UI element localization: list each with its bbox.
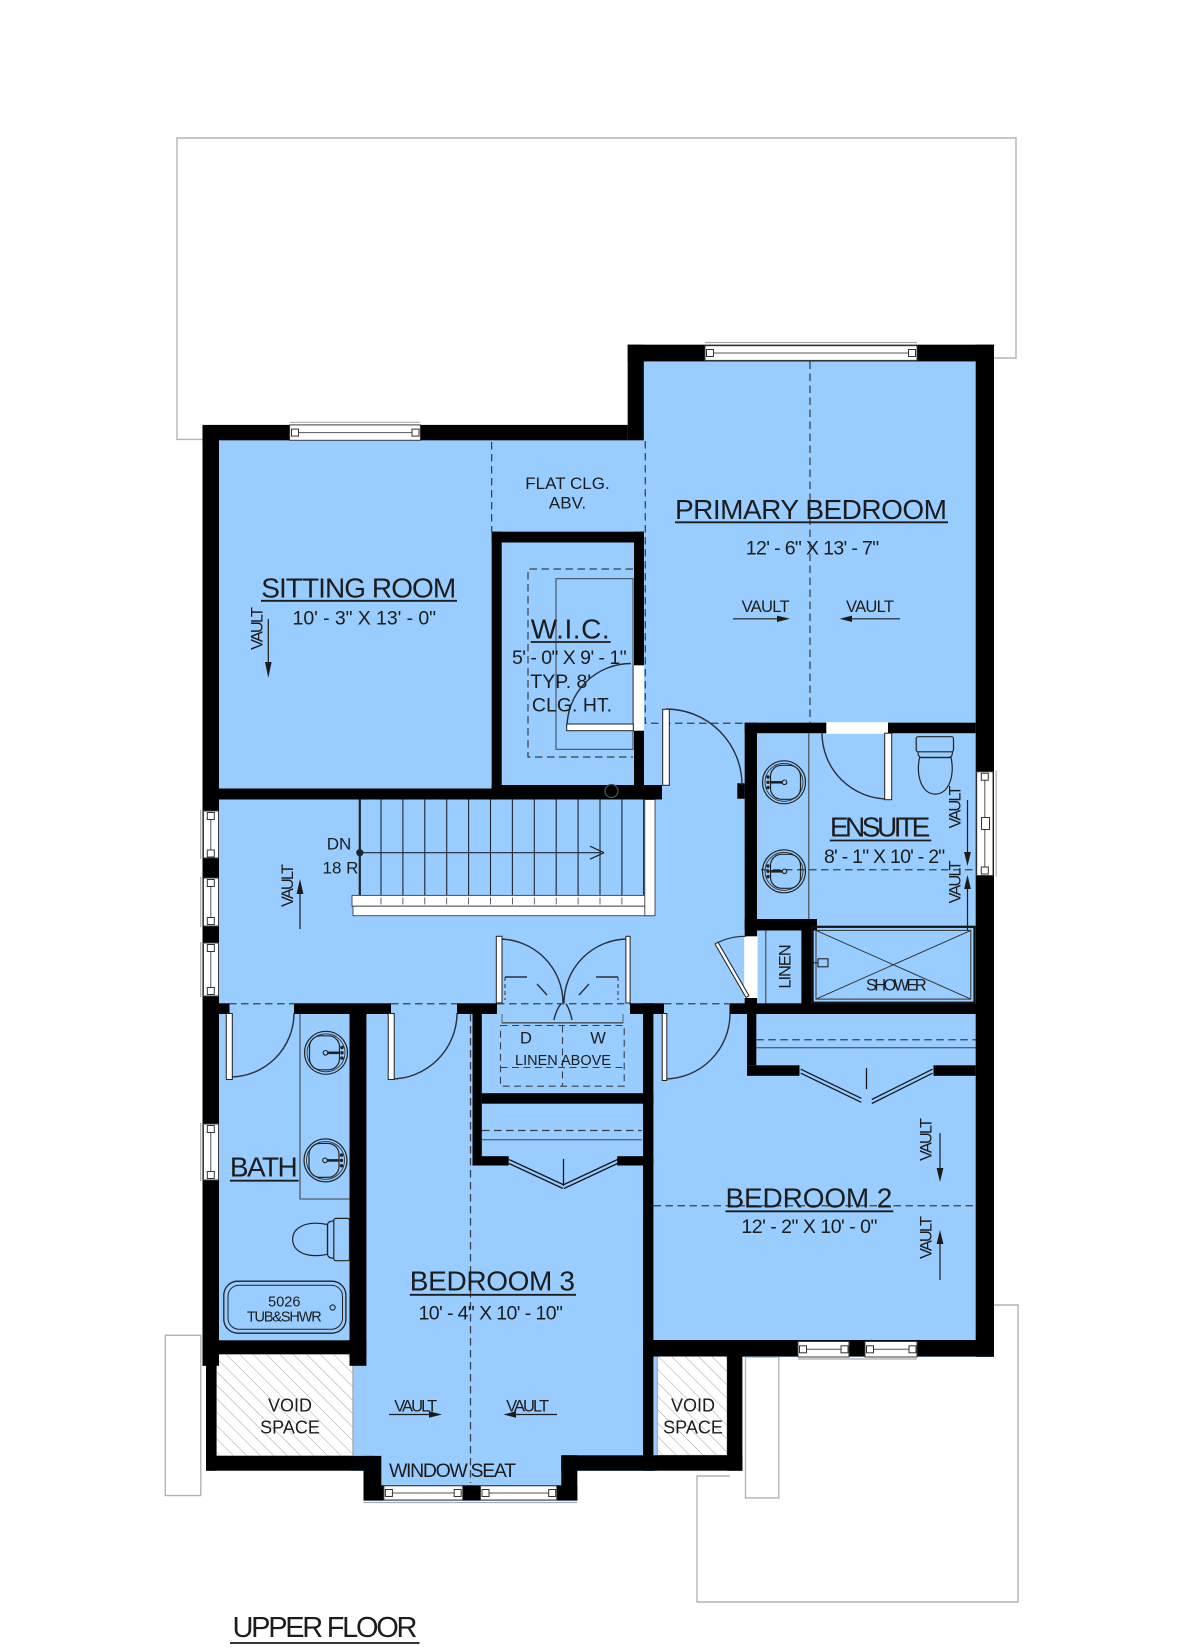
svg-text:W: W — [590, 1030, 606, 1048]
svg-text:LINEN ABOVE: LINEN ABOVE — [515, 1053, 611, 1069]
svg-text:DN: DN — [327, 835, 352, 854]
svg-text:SPACE: SPACE — [260, 1418, 320, 1438]
svg-text:VAULT: VAULT — [947, 861, 965, 904]
svg-text:5026: 5026 — [268, 1295, 300, 1311]
svg-text:10' - 4" X 10' - 10": 10' - 4" X 10' - 10" — [419, 1303, 563, 1325]
svg-text:12' - 6" X 13' - 7": 12' - 6" X 13' - 7" — [746, 538, 879, 560]
svg-text:VAULT: VAULT — [249, 607, 267, 650]
svg-text:VAULT: VAULT — [846, 598, 894, 616]
svg-text:VAULT: VAULT — [947, 786, 965, 829]
svg-text:LINEN: LINEN — [777, 944, 795, 988]
svg-text:VAULT: VAULT — [279, 864, 297, 907]
svg-text:VOID: VOID — [268, 1396, 312, 1416]
svg-text:TYP. 8': TYP. 8' — [530, 671, 591, 693]
svg-text:5' - 0" X 9' - 1": 5' - 0" X 9' - 1" — [512, 647, 627, 669]
svg-text:SITTING ROOM: SITTING ROOM — [261, 573, 457, 604]
svg-text:18 R: 18 R — [323, 859, 359, 878]
svg-text:VAULT: VAULT — [918, 1216, 936, 1259]
svg-text:BATH: BATH — [230, 1152, 299, 1183]
svg-text:SHOWER: SHOWER — [866, 977, 927, 995]
svg-text:VAULT: VAULT — [918, 1118, 936, 1161]
svg-text:VAULT: VAULT — [742, 598, 790, 616]
svg-text:TUB&SHWR: TUB&SHWR — [247, 1310, 322, 1326]
svg-text:CLG. HT.: CLG. HT. — [532, 695, 612, 717]
svg-text:WINDOW SEAT: WINDOW SEAT — [389, 1460, 516, 1482]
svg-text:VOID: VOID — [671, 1396, 715, 1416]
svg-text:12' - 2" X 10' - 0": 12' - 2" X 10' - 0" — [741, 1216, 877, 1238]
svg-text:ENSUITE: ENSUITE — [830, 812, 932, 843]
svg-text:BEDROOM 3: BEDROOM 3 — [410, 1266, 576, 1297]
svg-text:8' - 1" X 10' - 2": 8' - 1" X 10' - 2" — [824, 846, 945, 868]
svg-text:PRIMARY BEDROOM: PRIMARY BEDROOM — [675, 494, 948, 525]
svg-text:W.I.C.: W.I.C. — [531, 614, 611, 645]
svg-text:D: D — [520, 1030, 532, 1048]
svg-text:BEDROOM 2: BEDROOM 2 — [726, 1183, 894, 1214]
svg-text:UPPER FLOOR: UPPER FLOOR — [233, 1612, 419, 1644]
svg-text:SPACE: SPACE — [663, 1418, 723, 1438]
svg-text:ABV.: ABV. — [549, 494, 586, 513]
svg-text:10' - 3" X 13' - 0": 10' - 3" X 13' - 0" — [293, 608, 437, 630]
svg-text:FLAT CLG.: FLAT CLG. — [525, 474, 609, 493]
